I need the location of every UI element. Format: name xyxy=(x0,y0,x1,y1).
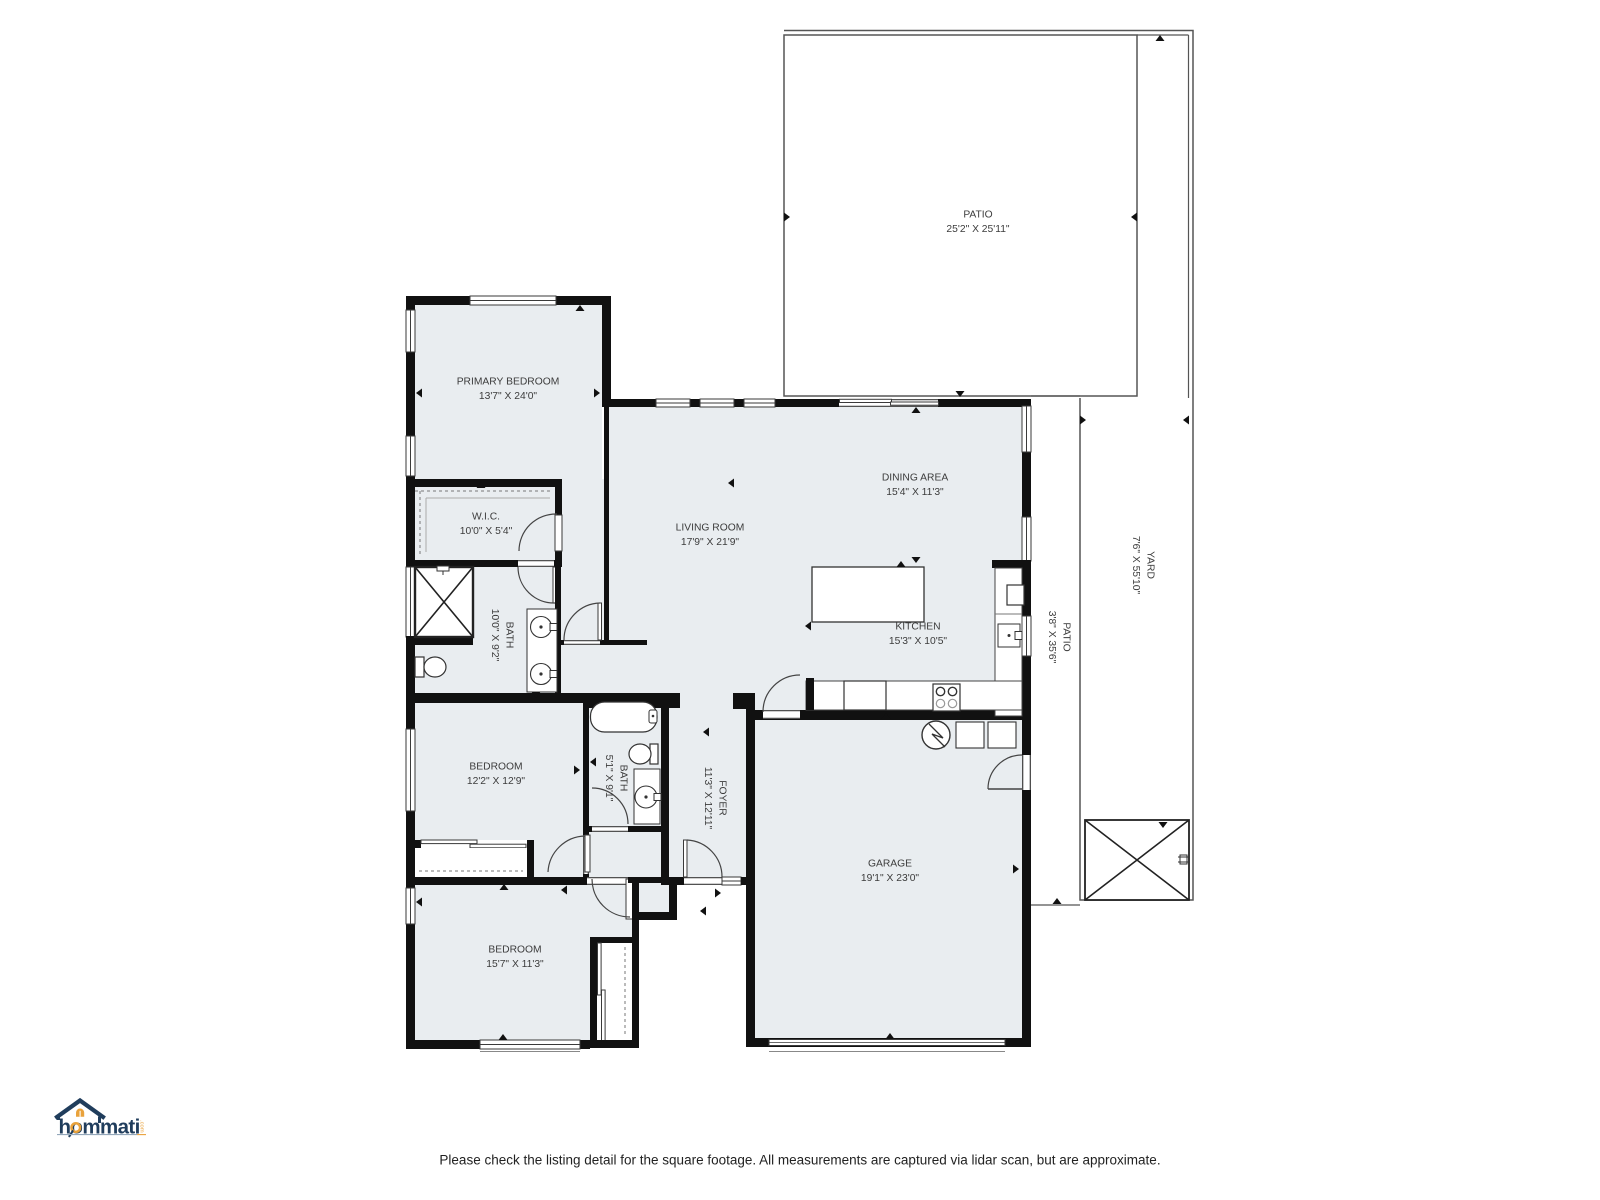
svg-text:PATIO: PATIO xyxy=(963,210,992,221)
svg-text:10'0" X 9'2": 10'0" X 9'2" xyxy=(489,609,500,662)
svg-text:15'7" X 11'3": 15'7" X 11'3" xyxy=(486,959,544,970)
svg-text:10'0" X 5'4": 10'0" X 5'4" xyxy=(460,526,513,537)
svg-text:DINING AREA: DINING AREA xyxy=(882,473,949,484)
svg-text:PATIO: PATIO xyxy=(1061,622,1072,651)
svg-text:GARAGE: GARAGE xyxy=(868,859,912,870)
svg-text:PRIMARY BEDROOM: PRIMARY BEDROOM xyxy=(457,377,560,388)
svg-text:KITCHEN: KITCHEN xyxy=(895,622,940,633)
svg-text:3'8" X 35'6": 3'8" X 35'6" xyxy=(1046,611,1057,664)
svg-text:25'2" X 25'11": 25'2" X 25'11" xyxy=(946,224,1009,235)
svg-text:BATH: BATH xyxy=(618,765,629,792)
svg-text:FOYER: FOYER xyxy=(717,780,728,815)
svg-text:11'3" X 12'11": 11'3" X 12'11" xyxy=(702,767,713,830)
svg-text:.com: .com xyxy=(139,1120,145,1133)
svg-text:15'4" X 11'3": 15'4" X 11'3" xyxy=(886,487,944,498)
svg-text:Please check the listing detai: Please check the listing detail for the … xyxy=(439,1153,1160,1168)
svg-text:12'2" X 12'9": 12'2" X 12'9" xyxy=(467,776,526,787)
svg-text:LIVING ROOM: LIVING ROOM xyxy=(676,523,745,534)
svg-text:13'7" X 24'0": 13'7" X 24'0" xyxy=(479,391,538,402)
svg-text:BATH: BATH xyxy=(504,622,515,649)
svg-text:17'9" X 21'9": 17'9" X 21'9" xyxy=(681,537,740,548)
svg-text:15'3" X 10'5": 15'3" X 10'5" xyxy=(889,636,948,647)
svg-text:BEDROOM: BEDROOM xyxy=(488,945,541,956)
svg-text:7'6" X 55'10": 7'6" X 55'10" xyxy=(1130,536,1141,595)
svg-text:5'1" X 9'1": 5'1" X 9'1" xyxy=(603,755,614,802)
svg-text:19'1" X 23'0": 19'1" X 23'0" xyxy=(861,873,920,884)
svg-text:W.I.C.: W.I.C. xyxy=(472,512,500,523)
svg-text:YARD: YARD xyxy=(1145,551,1156,579)
svg-text:BEDROOM: BEDROOM xyxy=(469,762,522,773)
